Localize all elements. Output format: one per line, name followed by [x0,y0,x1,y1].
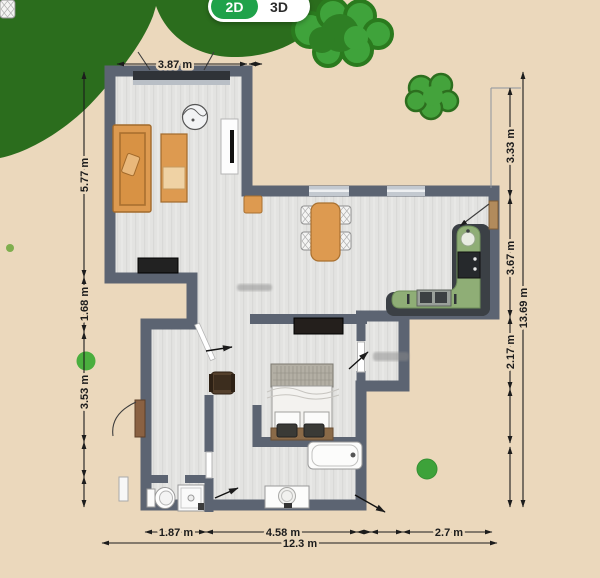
dining-table [311,203,340,261]
wc-doorway-gap [168,474,185,484]
vanity-sink[interactable] [265,486,309,508]
dim-label: 3.87 m [158,59,192,71]
dim-label: 5.77 m [79,158,91,192]
small-bush-left [77,352,96,371]
dim-label: 1.87 m [159,527,193,539]
bathtub[interactable] [308,442,362,469]
tiny-leaf [6,244,14,252]
lower-left-window [119,477,128,501]
dim-label: 3.53 m [79,375,91,409]
kitchen-window-2 [387,186,425,196]
dim-label: 13.69 m [518,288,530,329]
view-toggle: 2D 3D [208,0,310,22]
kitchen-window-1 [309,186,349,196]
headboard [271,364,333,387]
sofa[interactable] [113,125,151,212]
watermark [237,284,272,291]
dim-label: 3.67 m [505,241,517,275]
toilet[interactable] [147,488,175,509]
dim-label: 2.17 m [505,335,517,369]
round-rug[interactable] [183,105,208,130]
small-bush-right [417,459,437,479]
bedroom-dresser[interactable] [294,318,343,334]
stove [458,252,480,278]
french-door-lintel [133,71,230,80]
kitchen-sink [461,232,475,246]
toggle-2d-button[interactable]: 2D [211,0,258,19]
cooktop-unit [417,290,451,306]
dim-label: 2.7 m [435,527,463,539]
sideboard[interactable] [138,258,178,273]
bed[interactable] [267,364,339,440]
floor-plan-app: 3.87 m 5.77 m 1.68 m 3.53 m 3.33 m 3.67 … [0,0,600,578]
floor-plan-canvas: 3.87 m 5.77 m 1.68 m 3.53 m 3.33 m 3.67 … [0,0,600,578]
dim-label: 12.3 m [283,538,317,550]
dim-label: 3.33 m [505,129,517,163]
chaise-lounge[interactable] [161,134,187,202]
shower-tray[interactable] [178,485,204,511]
toggle-3d-button[interactable]: 3D [258,0,300,19]
dim-label: 1.68 m [79,287,91,321]
french-door-threshold [133,80,230,85]
stool[interactable] [244,196,262,213]
watermark [373,352,409,361]
bedroom-chair[interactable] [209,372,235,394]
tv-cabinet[interactable] [221,119,238,174]
